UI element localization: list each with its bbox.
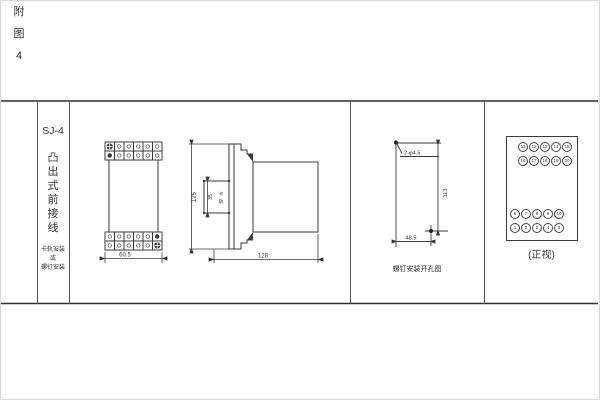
terminal-1: 1 (510, 223, 520, 233)
terminal-row-11-15: 11 12 13 14 15 (518, 142, 572, 152)
terminal-16: 16 (518, 156, 528, 166)
side-view-rail-dimension: 35 卡 轨 (208, 182, 224, 212)
terminal-18: 18 (540, 156, 550, 166)
terminal-2: 2 (521, 223, 531, 233)
figure-char: 图 (14, 23, 25, 45)
figure-number: 附 图 4 (1, 1, 37, 67)
terminal-row-1-5: 1 2 3 4 5 (510, 223, 564, 233)
terminal-row-16-20: 16 17 18 19 20 (518, 156, 572, 166)
terminal-9: 9 (543, 209, 553, 219)
dim-125: 125 (192, 191, 198, 202)
terminal-12: 12 (529, 142, 539, 152)
terminal-20: 20 (562, 156, 572, 166)
mounting-note-line: 或 (37, 255, 69, 264)
mounting-note: 卡轨安装 或 螺钉安装 (37, 246, 69, 273)
outline-front-view (105, 142, 162, 250)
terminal-8: 8 (532, 209, 542, 219)
terminal-5: 5 (554, 223, 564, 233)
drawing-sheet: 60.5 125 (0, 0, 600, 400)
figure-char: 4 (16, 45, 22, 67)
dim-113: 113 (443, 189, 449, 198)
terminal-15: 15 (562, 142, 572, 152)
terminal-19: 19 (551, 156, 561, 166)
drawing-title: 凸 出 式 前 接 线 (37, 151, 69, 235)
title-char: 前 (48, 193, 59, 207)
rail-label-char-1: 卡 (219, 191, 224, 198)
terminal-4: 4 (543, 223, 553, 233)
dim-35: 35 (208, 194, 214, 200)
hole-drawing-caption: 螺钉安装开孔图 (350, 264, 484, 274)
figure-char: 附 (14, 1, 25, 23)
terminal-row-6-10: 6 7 8 9 10 (510, 209, 564, 219)
terminal-14: 14 (551, 142, 561, 152)
side-view-clamp-dots (203, 180, 230, 214)
hole-spec-label: 2-φ4.5 (404, 151, 420, 157)
dim-128: 128 (258, 254, 269, 260)
mounting-note-line: 卡轨安装 (37, 246, 69, 255)
model-label: SJ-4 (37, 125, 69, 137)
rail-label-char-2: 轨 (219, 198, 224, 205)
terminal-7: 7 (521, 209, 531, 219)
title-char: 凸 (48, 151, 59, 165)
terminal-10: 10 (554, 209, 564, 219)
terminal-3: 3 (532, 223, 542, 233)
dim-60-5: 60.5 (119, 253, 131, 259)
title-char: 式 (48, 179, 59, 193)
title-char: 线 (48, 221, 59, 235)
terminal-11: 11 (518, 142, 528, 152)
front-view-caption: (正视) (484, 246, 599, 261)
dim-48-5: 48.5 (406, 236, 417, 242)
terminal-17: 17 (529, 156, 539, 166)
mounting-note-line: 螺钉安装 (37, 264, 69, 273)
front-view-width-dimension: 60.5 (105, 252, 162, 263)
terminal-6: 6 (510, 209, 520, 219)
title-char: 接 (48, 207, 59, 221)
mounting-hole-drawing: 2-φ4.5 113 48.5 (394, 141, 449, 248)
terminal-13: 13 (540, 142, 550, 152)
title-char: 出 (48, 165, 59, 179)
